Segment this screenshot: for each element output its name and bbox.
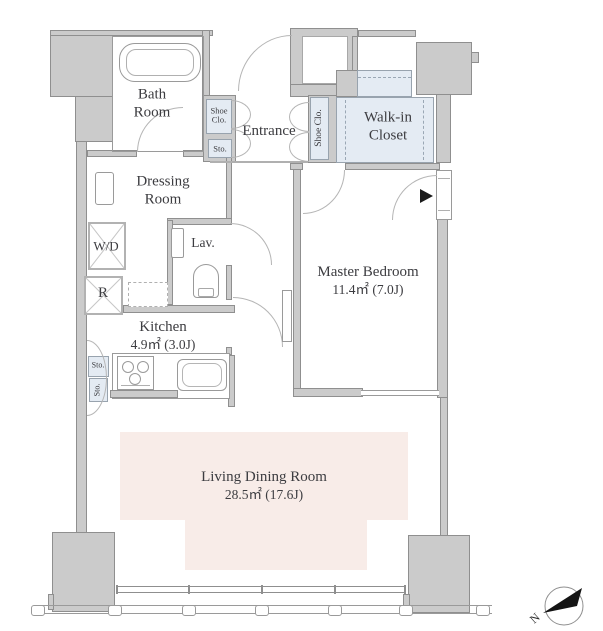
wall-lav-top <box>167 218 232 225</box>
walk-in-closet-upper <box>357 70 412 97</box>
wall-bedroom-south <box>293 388 363 397</box>
room-label-bath: Bath Room <box>121 86 183 121</box>
railing-post <box>399 605 413 616</box>
wall <box>436 94 451 163</box>
burner <box>129 373 141 385</box>
pillar <box>408 535 470 613</box>
label-kitchen-storage-upper: Sto. <box>92 362 105 371</box>
compass-north-indicator: N <box>524 574 603 631</box>
railing-post <box>182 605 196 616</box>
room-label-walk-in-closet: Walk-in Closet <box>356 109 420 144</box>
hall-niche <box>282 290 292 342</box>
railing-post <box>31 605 45 616</box>
pillar-notch <box>471 52 479 63</box>
window-divider <box>404 585 406 594</box>
stove <box>117 356 154 390</box>
label-shoe-closet-left: Shoe Clo. <box>206 107 232 126</box>
room-label-washer-dryer: W/D <box>93 238 118 253</box>
wall <box>437 219 448 398</box>
room-label-refrigerator: R <box>98 285 108 303</box>
lav-vanity <box>171 228 184 258</box>
kitchen-side-door-arc <box>87 340 107 416</box>
closet-rod-line <box>358 77 411 78</box>
front-door-jamb-line <box>438 178 450 179</box>
room-label-lavatory: Lav. <box>191 235 215 251</box>
room-label-dressing: Dressing Room <box>121 173 205 208</box>
label-kitchen-storage-lower: Sto. <box>94 384 103 397</box>
kitchen-area: 4.9㎡ (3.0J) <box>131 337 196 353</box>
burner <box>137 361 149 373</box>
closet-rod-line <box>345 100 347 160</box>
living-dining-floor-lower <box>185 520 367 570</box>
wall <box>352 36 358 71</box>
compass-letter: N <box>527 610 543 626</box>
wall <box>358 30 416 37</box>
room-label-master-bedroom: Master Bedroom 11.4㎡ (7.0J) <box>317 264 418 298</box>
toilet-seat <box>198 288 214 297</box>
lav-door-arc <box>230 223 272 265</box>
entrance-step-line <box>210 161 308 163</box>
kitchen-name: Kitchen <box>131 319 196 337</box>
window-divider <box>188 585 190 594</box>
label-entrance-storage: Sto. <box>213 144 226 153</box>
wall <box>75 96 113 142</box>
bedroom-door-arc <box>303 170 345 214</box>
wall-hall-west <box>226 265 232 300</box>
wall <box>76 141 87 533</box>
floor-plan: Bath Room Entrance Walk-in Closet Dressi… <box>0 0 603 631</box>
entrance-direction-arrow-icon <box>420 189 433 203</box>
master-bedroom-area: 11.4㎡ (7.0J) <box>317 282 418 298</box>
kitchen-hall-door-arc <box>233 297 283 347</box>
railing-post <box>476 605 490 616</box>
wall <box>50 35 113 97</box>
closet-rod-line <box>423 100 425 160</box>
window-divider <box>261 585 263 594</box>
wall <box>345 163 440 170</box>
window-divider <box>116 585 118 594</box>
washer-pan <box>128 282 168 307</box>
pillar <box>52 532 115 612</box>
wall <box>336 70 358 97</box>
railing-post <box>255 605 269 616</box>
dressing-counter <box>95 172 114 205</box>
kitchen-counter-bar <box>110 390 178 398</box>
stove-front <box>121 385 150 386</box>
room-label-kitchen: Kitchen 4.9㎡ (3.0J) <box>131 319 196 353</box>
label-shoe-closet-right: Shoe Clo. <box>314 109 324 146</box>
wall-bedroom-west <box>293 169 301 390</box>
pillar <box>416 42 472 95</box>
wall <box>440 397 448 537</box>
room-label-living-dining: Living Dining Room 28.5㎡ (17.6J) <box>201 469 327 503</box>
master-bedroom-name: Master Bedroom <box>317 264 418 282</box>
front-door-jamb-line <box>438 210 450 211</box>
kitchen-sink-inner <box>182 363 222 387</box>
bathtub-inner <box>126 49 194 76</box>
room-label-entrance: Entrance <box>242 123 295 141</box>
window-divider <box>334 585 336 594</box>
sliding-door <box>361 390 439 396</box>
railing-post <box>108 605 122 616</box>
living-dining-name: Living Dining Room <box>201 469 327 487</box>
railing-post <box>328 605 342 616</box>
burner <box>122 361 134 373</box>
living-dining-area: 28.5㎡ (17.6J) <box>201 487 327 503</box>
hall-door-arc <box>238 35 292 91</box>
